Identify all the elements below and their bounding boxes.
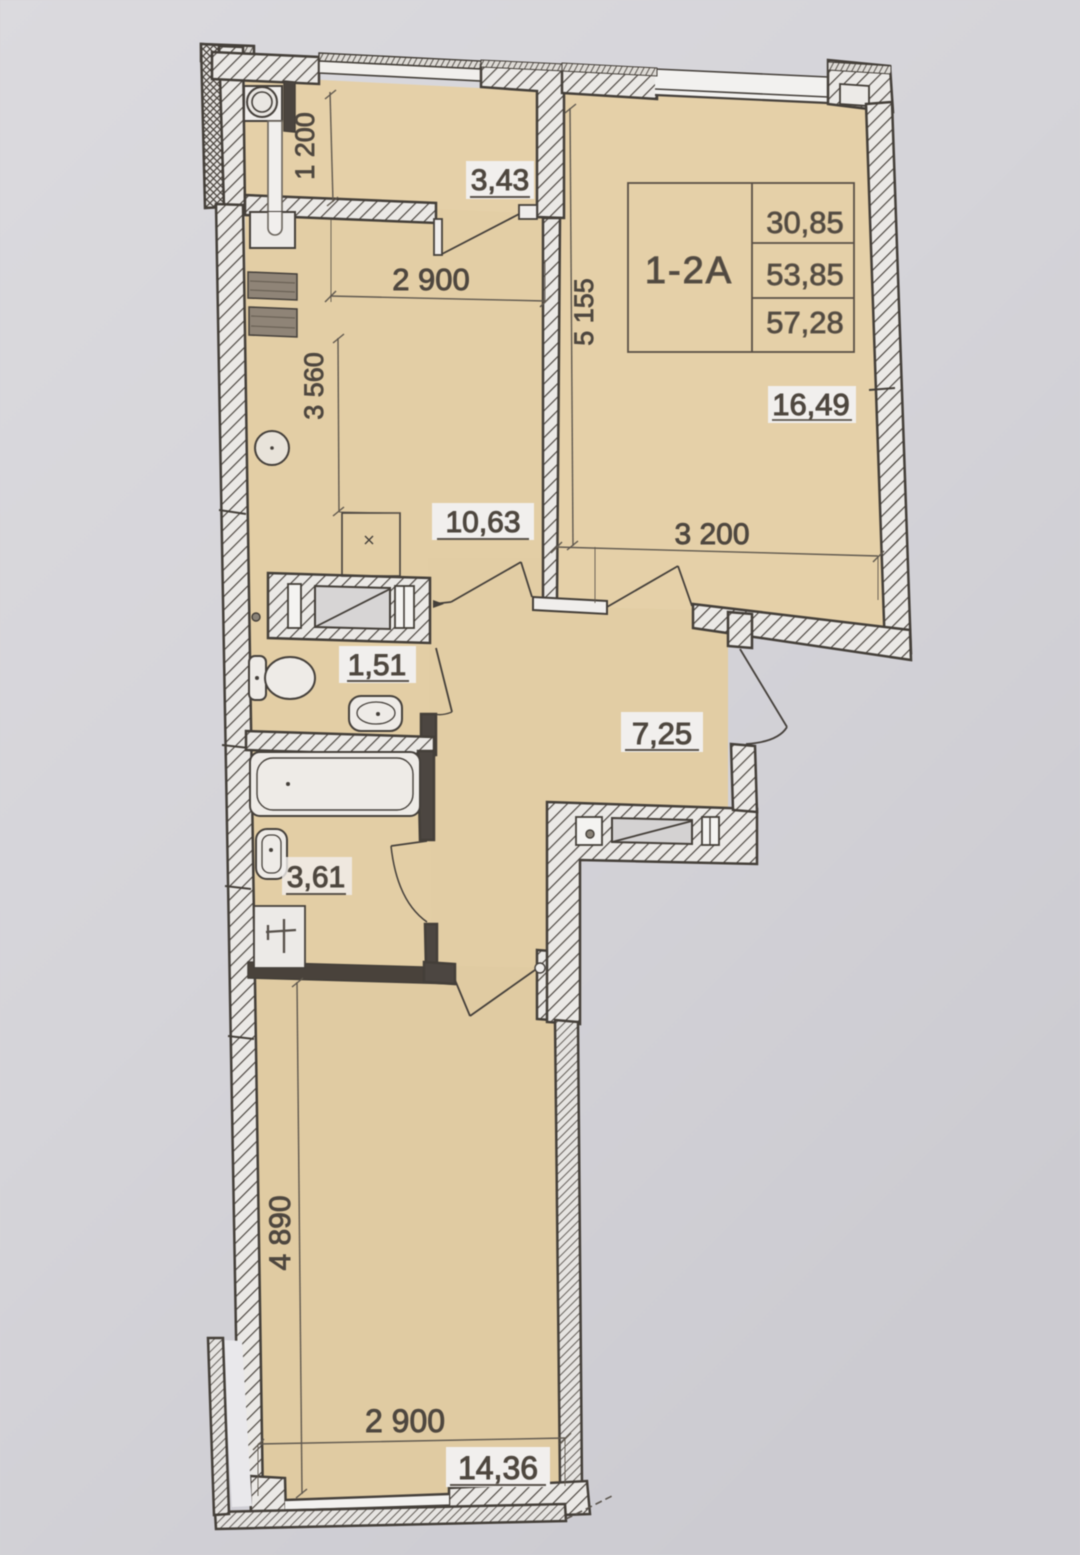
svg-text:1 200: 1 200 — [290, 112, 320, 180]
svg-text:3 200: 3 200 — [674, 518, 749, 551]
svg-text:16,49: 16,49 — [772, 387, 850, 422]
svg-text:57,28: 57,28 — [766, 305, 844, 340]
svg-text:30,85: 30,85 — [766, 205, 844, 240]
svg-text:1,51: 1,51 — [348, 649, 406, 682]
svg-text:4 890: 4 890 — [264, 1195, 297, 1270]
svg-text:3,43: 3,43 — [471, 164, 529, 197]
svg-text:53,85: 53,85 — [766, 257, 844, 292]
svg-text:5 155: 5 155 — [569, 278, 599, 346]
svg-text:7,25: 7,25 — [632, 716, 692, 751]
svg-text:14,36: 14,36 — [458, 1450, 538, 1486]
svg-text:2 900: 2 900 — [392, 262, 470, 297]
svg-text:1-2A: 1-2A — [645, 250, 733, 292]
svg-text:2 900: 2 900 — [365, 1403, 445, 1439]
svg-text:3 560: 3 560 — [299, 352, 329, 420]
svg-text:3,61: 3,61 — [287, 861, 345, 894]
svg-text:10,63: 10,63 — [445, 506, 520, 539]
